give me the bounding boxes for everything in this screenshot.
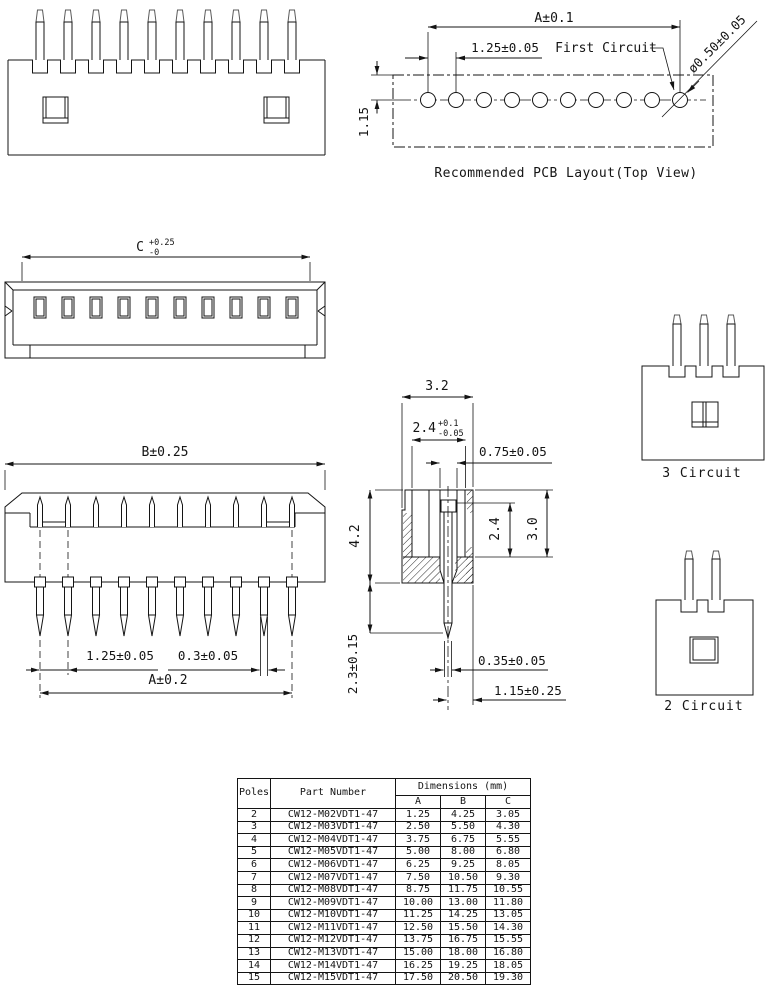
mounting-window-left (43, 97, 68, 123)
cell-part: CW12-M12VDT1-47 (271, 934, 396, 947)
header-dim-b: B (441, 796, 486, 809)
cell-b: 6.75 (441, 834, 486, 847)
cell-part: CW12-M08VDT1-47 (271, 884, 396, 897)
cell-c: 11.80 (486, 897, 531, 910)
pcb-dim-a-label: A±0.1 (534, 11, 573, 26)
pin-array (33, 10, 300, 73)
dim-c-plus: +0.25 (149, 238, 175, 248)
cell-b: 4.25 (441, 809, 486, 822)
inner-width-minus: -0.05 (438, 429, 464, 439)
two-circuit-pins (681, 551, 724, 612)
three-circuit-window (692, 402, 718, 427)
cell-b: 5.50 (441, 821, 486, 834)
solder-pins (35, 577, 298, 636)
table-row: 8 CW12-M08VDT1-47 8.75 11.75 10.55 (238, 884, 531, 897)
cell-c: 9.30 (486, 871, 531, 884)
total-height-label: 3.0 (526, 517, 541, 540)
first-circuit-label: First Circuit (555, 41, 657, 56)
cell-c: 5.55 (486, 834, 531, 847)
cell-poles: 6 (238, 859, 271, 872)
spec-table-body: 2 CW12-M02VDT1-47 1.25 4.25 3.05 3 CW12-… (238, 809, 531, 985)
cell-a: 2.50 (396, 821, 441, 834)
cell-c: 14.30 (486, 922, 531, 935)
header-dim-c: C (486, 796, 531, 809)
cell-a: 16.25 (396, 960, 441, 973)
spec-table: Poles Part Number Dimensions (mm) A B C … (237, 778, 531, 985)
table-row: 9 CW12-M09VDT1-47 10.00 13.00 11.80 (238, 897, 531, 910)
table-row: 15 CW12-M15VDT1-47 17.50 20.50 19.30 (238, 972, 531, 985)
cell-c: 3.05 (486, 809, 531, 822)
pin-tips (38, 497, 295, 527)
cell-poles: 2 (238, 809, 271, 822)
cell-a: 17.50 (396, 972, 441, 985)
cell-poles: 4 (238, 834, 271, 847)
section-hatching (403, 490, 473, 583)
cell-b: 8.00 (441, 846, 486, 859)
cell-part: CW12-M07VDT1-47 (271, 871, 396, 884)
dim-a2-label: A±0.2 (148, 673, 187, 688)
two-circuit-label: 2 Circuit (664, 699, 743, 714)
cell-part: CW12-M10VDT1-47 (271, 909, 396, 922)
cell-part: CW12-M14VDT1-47 (271, 960, 396, 973)
table-row: 4 CW12-M04VDT1-47 3.75 6.75 5.55 (238, 834, 531, 847)
cell-part: CW12-M13VDT1-47 (271, 947, 396, 960)
cell-part: CW12-M09VDT1-47 (271, 897, 396, 910)
cell-a: 7.50 (396, 871, 441, 884)
cell-a: 11.25 (396, 909, 441, 922)
cavity-depth-label: 2.4 (488, 517, 503, 541)
cell-poles: 7 (238, 871, 271, 884)
cell-c: 8.05 (486, 859, 531, 872)
tail-length-label: 2.3±0.15 (345, 634, 360, 694)
cell-c: 15.55 (486, 934, 531, 947)
front-view-drawing (0, 0, 345, 180)
inner-width-plus: +0.1 (438, 419, 458, 429)
cell-b: 11.75 (441, 884, 486, 897)
inner-width-label: 2.4 (413, 421, 437, 436)
header-poles: Poles (238, 779, 271, 809)
contact-slots (34, 297, 298, 318)
top-view-drawing: C +0.25 -0 (0, 228, 345, 370)
cell-b: 19.25 (441, 960, 486, 973)
cell-b: 10.50 (441, 871, 486, 884)
cell-b: 18.00 (441, 947, 486, 960)
table-row: 11 CW12-M11VDT1-47 12.50 15.50 14.30 (238, 922, 531, 935)
pin-pitch-label: 1.25±0.05 (86, 648, 154, 663)
cell-b: 9.25 (441, 859, 486, 872)
cell-poles: 3 (238, 821, 271, 834)
header-dimensions: Dimensions (mm) (396, 779, 531, 796)
cell-c: 13.05 (486, 909, 531, 922)
cell-part: CW12-M06VDT1-47 (271, 859, 396, 872)
pin-offset-label: 1.15±0.25 (494, 683, 562, 698)
cell-poles: 9 (238, 897, 271, 910)
cell-a: 12.50 (396, 922, 441, 935)
front-dimension-drawing: B±0.25 (0, 438, 345, 705)
table-row: 2 CW12-M02VDT1-47 1.25 4.25 3.05 (238, 809, 531, 822)
cell-part: CW12-M03VDT1-47 (271, 821, 396, 834)
pin-width-label: 0.3±0.05 (178, 648, 238, 663)
section-view-drawing: 3.2 2.4 +0.1 -0.05 0.75±0.05 4.2 2.4 3.0… (340, 358, 635, 750)
cell-poles: 11 (238, 922, 271, 935)
cell-poles: 12 (238, 934, 271, 947)
pcb-caption: Recommended PCB Layout(Top View) (434, 166, 697, 181)
dim-c-label: C (136, 240, 144, 255)
contact-head (441, 500, 456, 512)
cell-poles: 13 (238, 947, 271, 960)
table-row: 12 CW12-M12VDT1-47 13.75 16.75 15.55 (238, 934, 531, 947)
table-row: 6 CW12-M06VDT1-47 6.25 9.25 8.05 (238, 859, 531, 872)
pcb-layout-drawing: A±0.1 1.25±0.05 First Circuit ø0.50±0.05… (345, 0, 775, 192)
cell-a: 3.75 (396, 834, 441, 847)
cell-b: 13.00 (441, 897, 486, 910)
cell-poles: 14 (238, 960, 271, 973)
pcb-edge-offset-label: 1.15 (356, 107, 371, 137)
cell-poles: 10 (238, 909, 271, 922)
pin-thickness-label: 0.35±0.05 (478, 653, 546, 668)
cell-c: 6.80 (486, 846, 531, 859)
cell-b: 14.25 (441, 909, 486, 922)
body-height-label: 4.2 (348, 524, 363, 547)
cell-c: 19.30 (486, 972, 531, 985)
cell-c: 10.55 (486, 884, 531, 897)
cell-a: 1.25 (396, 809, 441, 822)
cell-c: 18.05 (486, 960, 531, 973)
cell-poles: 8 (238, 884, 271, 897)
header-dim-a: A (396, 796, 441, 809)
cell-poles: 15 (238, 972, 271, 985)
table-row: 5 CW12-M05VDT1-47 5.00 8.00 6.80 (238, 846, 531, 859)
cell-a: 6.25 (396, 859, 441, 872)
drawing-canvas: A±0.1 1.25±0.05 First Circuit ø0.50±0.05… (0, 0, 775, 1000)
cell-a: 10.00 (396, 897, 441, 910)
slot-width-label: 0.75±0.05 (479, 444, 547, 459)
dim-b-label: B±0.25 (142, 445, 189, 460)
cell-b: 20.50 (441, 972, 486, 985)
two-circuit-window (690, 637, 718, 663)
table-row: 10 CW12-M10VDT1-47 11.25 14.25 13.05 (238, 909, 531, 922)
pcb-pitch-label: 1.25±0.05 (471, 40, 539, 55)
two-circuit-drawing: 2 Circuit (620, 518, 775, 735)
cell-c: 16.80 (486, 947, 531, 960)
cell-part: CW12-M05VDT1-47 (271, 846, 396, 859)
table-row: 14 CW12-M14VDT1-47 16.25 19.25 18.05 (238, 960, 531, 973)
cell-part: CW12-M04VDT1-47 (271, 834, 396, 847)
cell-b: 16.75 (441, 934, 486, 947)
table-row: 7 CW12-M07VDT1-47 7.50 10.50 9.30 (238, 871, 531, 884)
mounting-window-right (264, 97, 289, 123)
cell-c: 4.30 (486, 821, 531, 834)
table-row: 3 CW12-M03VDT1-47 2.50 5.50 4.30 (238, 821, 531, 834)
pcb-outline (393, 75, 713, 147)
table-row: 13 CW12-M13VDT1-47 15.00 18.00 16.80 (238, 947, 531, 960)
cell-part: CW12-M02VDT1-47 (271, 809, 396, 822)
hole-diameter-label: ø0.50±0.05 (685, 12, 749, 76)
three-circuit-pins (669, 315, 739, 377)
cell-a: 5.00 (396, 846, 441, 859)
cell-poles: 5 (238, 846, 271, 859)
body-width-label: 3.2 (425, 379, 448, 394)
cell-a: 8.75 (396, 884, 441, 897)
cell-part: CW12-M15VDT1-47 (271, 972, 396, 985)
cell-b: 15.50 (441, 922, 486, 935)
three-circuit-label: 3 Circuit (662, 466, 741, 481)
cell-part: CW12-M11VDT1-47 (271, 922, 396, 935)
three-circuit-drawing: 3 Circuit (620, 288, 775, 490)
header-part-number: Part Number (271, 779, 396, 809)
cell-a: 15.00 (396, 947, 441, 960)
cell-a: 13.75 (396, 934, 441, 947)
